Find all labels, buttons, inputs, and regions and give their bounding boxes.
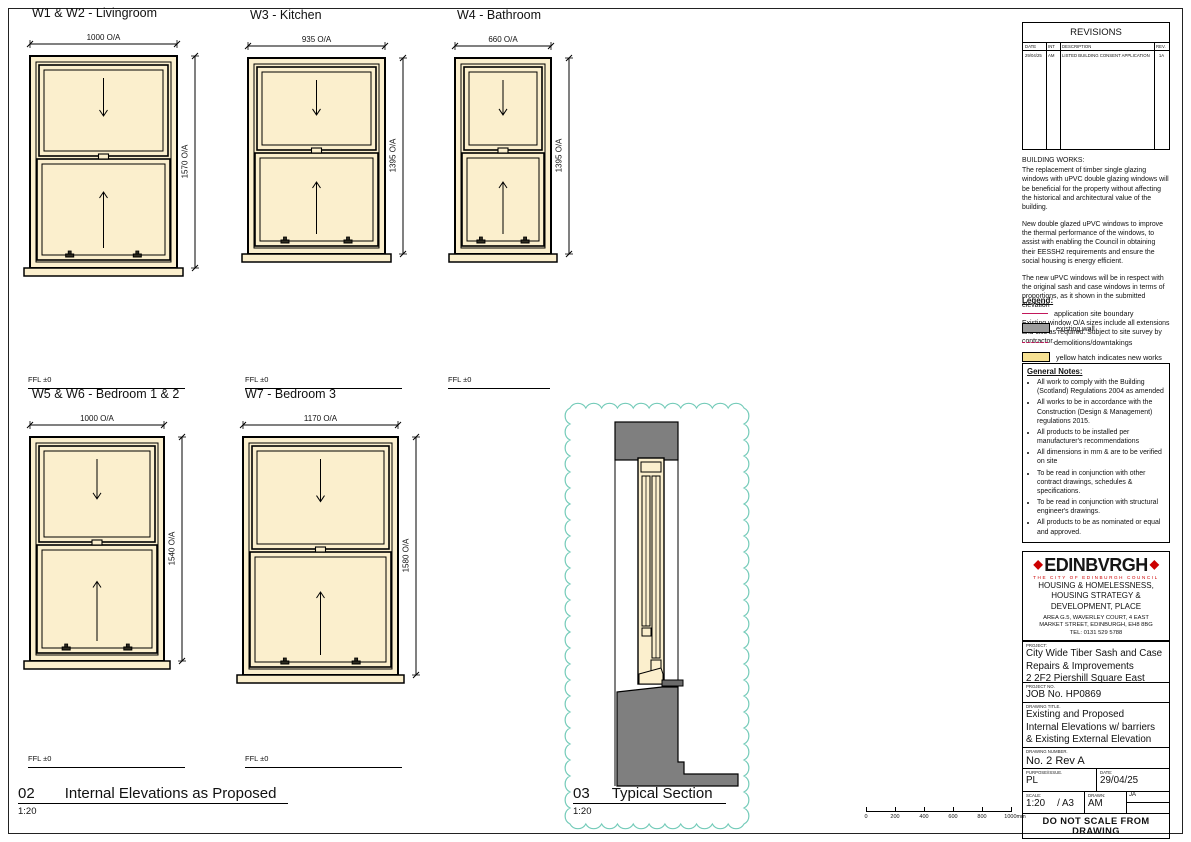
note-item: To be read in conjunction with structura… xyxy=(1037,498,1165,516)
scale-bar-tick xyxy=(924,807,925,812)
scale-bar-label: 400 xyxy=(919,814,928,820)
note-item: All work to comply with the Building (Sc… xyxy=(1037,378,1165,396)
ffl-datum: FFL ±0 xyxy=(28,748,185,768)
drawing-number-03: 03 xyxy=(573,785,590,802)
drawing-number-field: DRAWING NUMBER. No. 2 Rev A xyxy=(1022,748,1170,769)
note-item: To be read in conjunction with other con… xyxy=(1037,469,1165,497)
section-drawing-label: 03 Typical Section 1:20 xyxy=(573,785,726,817)
window-title: W1 & W2 - Livingroom xyxy=(32,6,157,20)
drawing-title-03: Typical Section xyxy=(612,785,713,802)
paper-size: / A3 xyxy=(1057,798,1074,809)
demolitions-swatch xyxy=(1022,342,1048,343)
drawing-title: Existing and Proposed xyxy=(1026,709,1166,722)
revision-rev: 1A xyxy=(1154,53,1169,58)
address-line: MARKET STREET, EDINBURGH, EH8 8BG xyxy=(1023,622,1169,630)
revision-initials: AM xyxy=(1046,53,1060,58)
height-dimension-label: 1570 O/A xyxy=(181,122,190,202)
typical-section-drawing xyxy=(562,402,752,832)
drawing-title: Internal Elevations w/ barriers xyxy=(1026,722,1166,735)
window-title: W7 - Bedroom 3 xyxy=(245,387,336,401)
ffl-rule xyxy=(28,388,185,389)
title-block: PROJECT: City Wide Tiber Sash and Case R… xyxy=(1022,641,1170,839)
project-number: JOB No. HP0869 xyxy=(1026,689,1166,702)
legend-label: existing wall xyxy=(1056,324,1095,333)
date-value: 29/04/25 xyxy=(1100,775,1166,788)
general-notes-title: General Notes: xyxy=(1027,367,1165,376)
table-rule xyxy=(1046,43,1047,149)
ffl-rule xyxy=(28,767,185,768)
legend-item: existing wall xyxy=(1022,323,1174,333)
scale-bar-label: 800 xyxy=(977,814,986,820)
building-works-title: BUILDING WORKS: xyxy=(1022,156,1170,165)
ffl-datum: FFL ±0 xyxy=(448,369,550,389)
scale-ratio: 1:20 xyxy=(1026,798,1045,809)
general-notes: General Notes: All work to comply with t… xyxy=(1022,363,1170,543)
logo-dot-icon: ◆ xyxy=(1032,557,1045,571)
project-number-field: PROJECT No. JOB No. HP0869 xyxy=(1022,683,1170,703)
ffl-datum: FFL ±0 xyxy=(245,369,402,389)
drawing-scale-03: 1:20 xyxy=(573,804,726,817)
drawing-scale-02: 1:20 xyxy=(18,804,288,817)
legend-item: application site boundary xyxy=(1022,309,1174,318)
legend-label: yellow hatch indicates new works xyxy=(1056,353,1162,362)
scale-bar-tick xyxy=(982,807,983,812)
height-dimension-label: 1395 O/A xyxy=(555,116,564,196)
site-boundary-swatch xyxy=(1022,313,1048,314)
edinburgh-council-logo: ◆EDINBVRGH◆ xyxy=(1023,556,1169,574)
address-line: AREA G.5, WAVERLEY COURT, 4 EAST xyxy=(1023,615,1169,623)
department-line: HOUSING & HOMELESSNESS, xyxy=(1023,581,1169,591)
scale-field: SCALE: 1:20/ A3 xyxy=(1023,792,1085,813)
ffl-label: FFL ±0 xyxy=(448,375,471,384)
scale-bar-tick xyxy=(895,807,896,812)
project-name: Repairs & Improvements xyxy=(1026,661,1166,674)
ffl-label: FFL ±0 xyxy=(245,754,268,763)
ffl-label: FFL ±0 xyxy=(245,375,268,384)
empty-cell xyxy=(1127,803,1169,813)
ffl-label: FFL ±0 xyxy=(28,375,51,384)
window-elevation-w7: W7 - Bedroom 3 1170 O/A 1580 O/A xyxy=(235,387,436,697)
window-elevation-w4: W4 - Bathroom 660 O/A 1395 O/A xyxy=(447,8,589,276)
legend-item: yellow hatch indicates new works xyxy=(1022,352,1174,362)
revision-row: 29/04/25 AM LISTED BUILDING CONSENT APPL… xyxy=(1023,51,1169,60)
label-head: 02 Internal Elevations as Proposed xyxy=(18,785,288,804)
legend-item: demolitions/downtakings xyxy=(1022,338,1174,347)
col-description: DESCRIPTION xyxy=(1060,44,1154,49)
height-dimension-label: 1580 O/A xyxy=(402,516,411,596)
col-date: DATE xyxy=(1023,44,1046,49)
label-head: 03 Typical Section xyxy=(573,785,726,804)
scale-bar-tick xyxy=(953,807,954,812)
new-works-swatch xyxy=(1022,352,1050,362)
window-elevation-w5-w6: W5 & W6 - Bedroom 1 & 2 1000 O/A 1540 O/… xyxy=(22,387,202,683)
revisions-header: DATE INT DESCRIPTION REV. xyxy=(1023,43,1169,51)
height-dimension-label: 1540 O/A xyxy=(168,509,177,589)
note-item: All products to be as nominated or equal… xyxy=(1037,518,1165,536)
legend-label: application site boundary xyxy=(1054,309,1134,318)
window-title: W3 - Kitchen xyxy=(250,8,322,22)
scale-drawn-row: SCALE: 1:20/ A3 DRAWN: AM JA xyxy=(1022,792,1170,814)
do-not-scale-note: DO NOT SCALE FROM DRAWING xyxy=(1022,814,1170,839)
drawing-title-field: DRAWING TITLE. Existing and Proposed Int… xyxy=(1022,703,1170,748)
council-block: ◆EDINBVRGH◆ THE CITY OF EDINBURGH COUNCI… xyxy=(1022,551,1170,641)
legend: Legend: application site boundary existi… xyxy=(1022,296,1174,367)
legend-label: demolitions/downtakings xyxy=(1054,338,1132,347)
scale-bar: 0 200 400 600 800 1000mm xyxy=(866,806,1026,826)
project-field: PROJECT: City Wide Tiber Sash and Case R… xyxy=(1022,641,1170,683)
note-item: All dimensions in mm & are to be verifie… xyxy=(1037,448,1165,466)
revision-date: 29/04/25 xyxy=(1023,53,1046,58)
drawing-title-02: Internal Elevations as Proposed xyxy=(65,785,277,802)
logo-text: EDINBVRGH xyxy=(1044,555,1148,575)
col-rev: REV. xyxy=(1154,44,1169,49)
date-field: DATE: 29/04/25 xyxy=(1097,769,1169,791)
col-int: INT xyxy=(1046,44,1060,49)
ffl-label: FFL ±0 xyxy=(28,754,51,763)
department-line: DEVELOPMENT, PLACE xyxy=(1023,602,1169,612)
department-line: HOUSING STRATEGY & xyxy=(1023,591,1169,601)
purpose-date-row: PURPOSE/ISSUE. PL DATE: 29/04/25 xyxy=(1022,769,1170,792)
revisions-title: REVISIONS xyxy=(1023,23,1169,43)
scale-bar-tick xyxy=(866,807,867,812)
note-item: All works to be in accordance with the C… xyxy=(1037,398,1165,426)
table-rule xyxy=(1154,43,1155,149)
window-title: W4 - Bathroom xyxy=(457,8,541,22)
drawing-number: No. 2 Rev A xyxy=(1026,754,1166,769)
revisions-table: REVISIONS DATE INT DESCRIPTION REV. 29/0… xyxy=(1022,22,1170,150)
building-works-paragraph: New double glazed uPVC windows to improv… xyxy=(1022,220,1170,266)
table-rule xyxy=(1060,43,1061,149)
drawing-sheet: W1 & W2 - Livingroom 1000 O/A 1570 O/A W… xyxy=(0,0,1191,842)
purpose-field: PURPOSE/ISSUE. PL xyxy=(1023,769,1097,791)
scale-bar-line xyxy=(866,811,1011,812)
height-dimension-label: 1395 O/A xyxy=(389,116,398,196)
drawn-field: DRAWN: AM xyxy=(1085,792,1127,813)
checked-field: JA xyxy=(1127,792,1169,813)
ffl-datum: FFL ±0 xyxy=(245,748,402,768)
existing-wall-swatch xyxy=(1022,323,1050,333)
ffl-rule xyxy=(245,388,402,389)
window-elevation-w1-w2: W1 & W2 - Livingroom 1000 O/A 1570 O/A xyxy=(22,6,215,290)
general-notes-list: All work to comply with the Building (Sc… xyxy=(1023,378,1169,537)
ffl-rule xyxy=(448,388,550,389)
scale-bar-tick xyxy=(1011,807,1012,812)
drawing-number-02: 02 xyxy=(18,785,35,802)
checked-value: JA xyxy=(1127,792,1169,803)
ffl-datum: FFL ±0 xyxy=(28,369,185,389)
scale-value: 1:20/ A3 xyxy=(1026,798,1081,811)
sash-window-drawing xyxy=(447,28,589,281)
building-works-paragraph: The replacement of timber single glazing… xyxy=(1022,166,1170,212)
drawn-value: AM xyxy=(1088,798,1123,811)
drawing-title: & Existing External Elevation xyxy=(1026,734,1166,747)
purpose-value: PL xyxy=(1026,775,1093,788)
scale-bar-label: 0 xyxy=(864,814,867,820)
elevations-drawing-label: 02 Internal Elevations as Proposed 1:20 xyxy=(18,785,288,817)
scale-bar-label: 600 xyxy=(948,814,957,820)
window-elevation-w3: W3 - Kitchen 935 O/A 1395 O/A xyxy=(240,8,423,276)
project-name: City Wide Tiber Sash and Case xyxy=(1026,648,1166,661)
logo-subtitle: THE CITY OF EDINBURGH COUNCIL xyxy=(1023,575,1169,580)
ffl-rule xyxy=(245,767,402,768)
logo-dot-icon: ◆ xyxy=(1148,557,1161,571)
legend-title: Legend: xyxy=(1022,296,1174,305)
window-title: W5 & W6 - Bedroom 1 & 2 xyxy=(32,387,179,401)
scale-bar-label: 200 xyxy=(890,814,899,820)
telephone: TEL: 0131 529 5788 xyxy=(1023,630,1169,638)
note-item: All products to be installed per manufac… xyxy=(1037,428,1165,446)
revision-description: LISTED BUILDING CONSENT APPLICATION xyxy=(1060,53,1154,58)
